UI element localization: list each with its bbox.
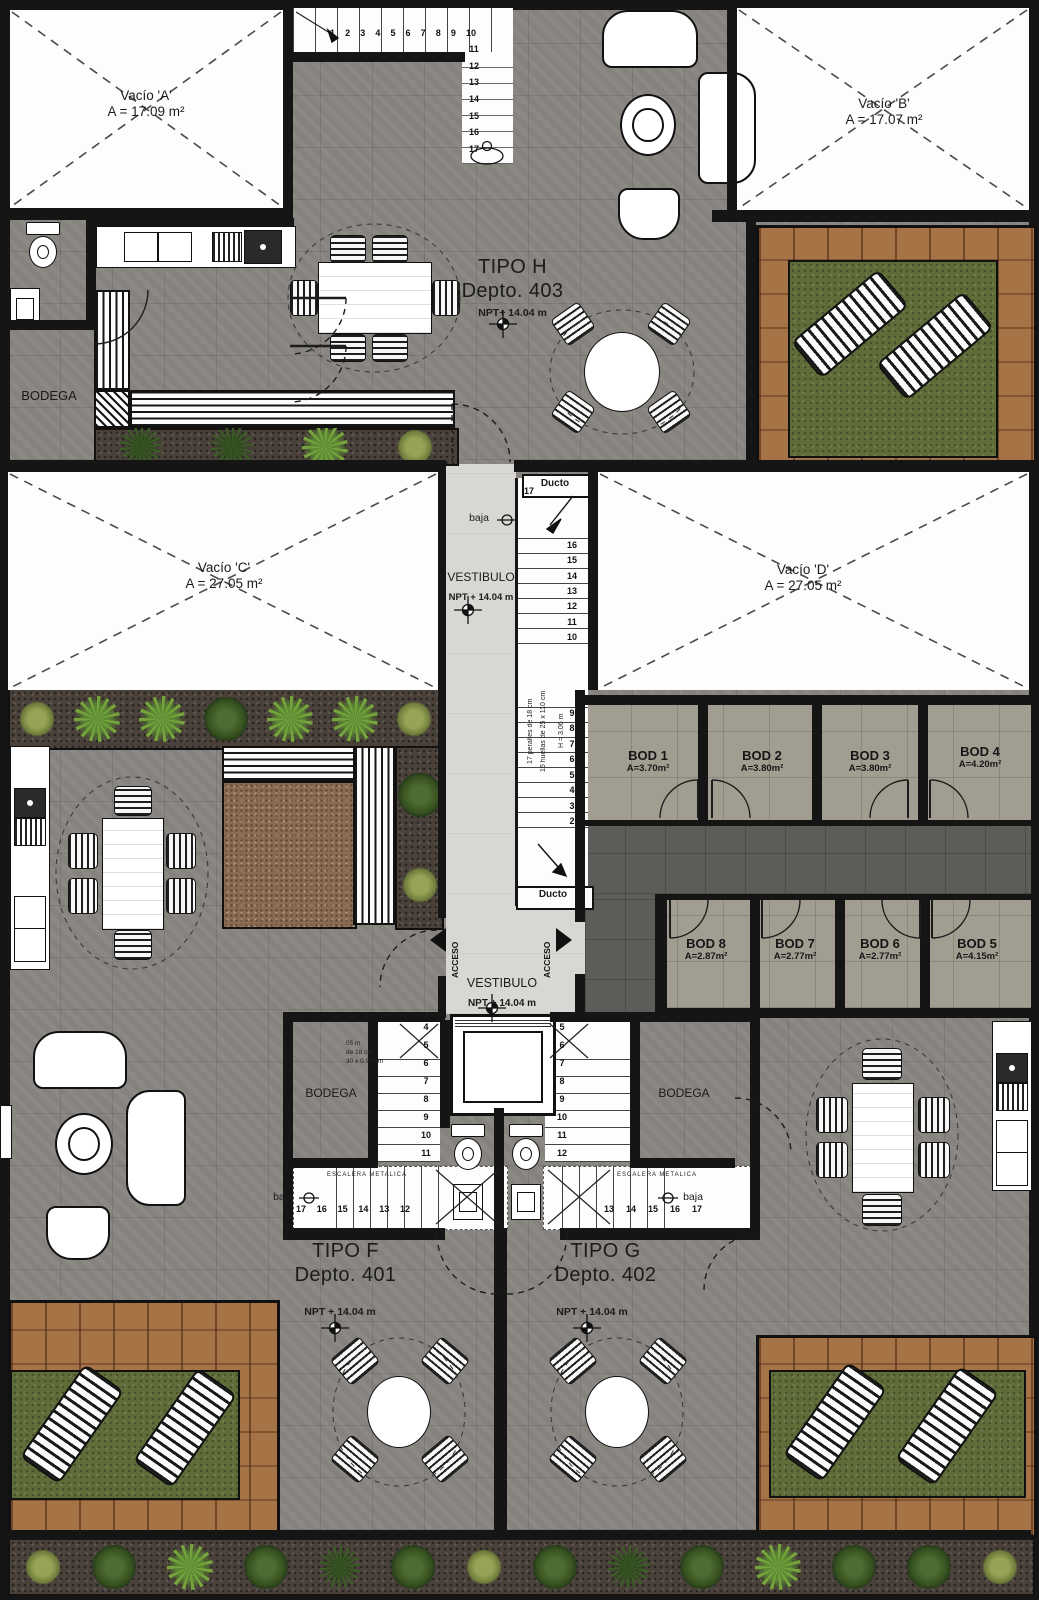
bench-corner [94, 390, 130, 428]
floor-plan: Vacío 'A' A = 17.09 m² Vacío 'B' A = 17.… [0, 0, 1039, 1600]
dining-table [852, 1083, 914, 1193]
chair-icon [918, 1142, 950, 1178]
stair-mid-note-1: 17 peraltes de 18 cm [527, 636, 534, 764]
wall [746, 222, 756, 465]
dishwasher-icon [996, 1083, 1028, 1111]
dishwasher-icon [212, 232, 242, 262]
unit-type: TIPO H [478, 256, 547, 278]
void-name: Vacío 'C' [198, 560, 250, 575]
vestibulo-npt: NPT + 14.04 m [468, 998, 536, 1009]
chair-icon [816, 1142, 848, 1178]
stair-f-note: 30 x 0.90 cm [346, 1058, 383, 1065]
wall [655, 894, 1039, 900]
plant-icon [832, 1545, 876, 1589]
dining-table [102, 818, 164, 930]
unit-type: TIPO F [312, 1240, 379, 1262]
elevator [450, 1014, 556, 1116]
bodega-label-f: BODEGA [292, 1086, 370, 1100]
bod-3-label: BOD 3A=3.80m² [822, 748, 918, 774]
plant-icon [391, 1545, 435, 1589]
bod-5-label: BOD 5A=4.15m² [922, 936, 1032, 962]
bench-vertical [94, 290, 130, 390]
plant-icon [680, 1545, 724, 1589]
side-table-icon [620, 94, 676, 156]
plant-icon [267, 696, 313, 742]
stair-number: 4 [375, 28, 380, 42]
wall [494, 1228, 507, 1538]
stair-number: 2 [560, 816, 584, 826]
stair-number: 13 [560, 586, 584, 596]
bodega-label-h: BODEGA [12, 388, 86, 403]
stair-g-flight-numbers: 56789101112 [550, 1022, 574, 1158]
stair-number: 5 [390, 28, 395, 42]
stair-number: 8 [414, 1094, 438, 1104]
stair-number: 10 [560, 632, 584, 642]
bod-6-label: BOD 6A=2.77m² [837, 936, 923, 962]
wall [630, 1020, 640, 1164]
stair-number: 10 [550, 1112, 574, 1122]
plant-icon [204, 697, 248, 741]
stair-number: 5 [550, 1022, 574, 1032]
acceso-arrow-left-icon [430, 928, 446, 952]
stair-number: 7 [414, 1076, 438, 1086]
storage-corridor-left [585, 894, 655, 1020]
bod-area: A=4.15m² [922, 951, 1032, 962]
stair-number: 9 [451, 28, 456, 42]
plant-icon [398, 773, 442, 817]
bod-area: A=2.77m² [837, 951, 923, 962]
stair-number: 5 [560, 770, 584, 780]
sofa-icon [126, 1090, 186, 1206]
ducto-label-bottom: Ducto [516, 889, 590, 901]
bod-name: BOD 5 [922, 936, 1032, 951]
bod-name: BOD 3 [822, 748, 918, 763]
wall [8, 1530, 1031, 1540]
chair-icon [166, 878, 196, 914]
stair-number: 17 [462, 144, 486, 154]
wall [96, 218, 294, 226]
stair-number: 17 [692, 1204, 702, 1220]
sink-icon [244, 230, 282, 264]
bodega-label-g: BODEGA [640, 1086, 728, 1100]
wall [585, 820, 1039, 826]
stair-top-run-numbers: 12345678910 [330, 28, 476, 42]
washbasin-icon [453, 1184, 483, 1220]
stair-number: 13 [604, 1204, 614, 1220]
acceso-label-right: ACCESO [542, 922, 552, 978]
stair-number: 12 [560, 601, 584, 611]
vestibulo-text: VESTIBULO [467, 976, 537, 990]
unit-depto: Depto. 403 [462, 280, 564, 302]
plant-icon [907, 1545, 951, 1589]
wall [10, 320, 96, 330]
wall [440, 1020, 450, 1128]
chair-icon [372, 235, 408, 263]
stair-number: 11 [462, 44, 486, 54]
side-table-icon [55, 1113, 113, 1175]
stair-number: 2 [345, 28, 350, 42]
unit-type: TIPO G [570, 1240, 640, 1262]
toilet-icon [509, 1124, 543, 1170]
sink-icon [14, 788, 46, 818]
bod-name: BOD 2 [712, 748, 812, 763]
void-name: Vacío 'D' [777, 562, 829, 577]
wall [86, 218, 96, 330]
chair-icon [918, 1097, 950, 1133]
cabinet-icon [996, 1152, 1028, 1186]
void-a-label: Vacío 'A' A = 17.09 m² [56, 88, 236, 120]
stair-number: 14 [462, 94, 486, 104]
wall [514, 460, 1039, 472]
toilet-icon [26, 222, 60, 268]
wall [727, 0, 737, 222]
baja-label-g: baja [678, 1191, 708, 1203]
wall [494, 1108, 504, 1228]
armchair-icon [46, 1206, 110, 1260]
stair-number: 15 [462, 111, 486, 121]
unit-h-label: TIPO H Depto. 403 NPT+ 14.04 m [425, 256, 600, 322]
plant-icon [25, 1549, 61, 1585]
stair-number: 12 [462, 61, 486, 71]
wall [812, 705, 822, 823]
bench-long [130, 390, 455, 428]
stair-number: 7 [550, 1058, 574, 1068]
storage-corridor [585, 826, 1031, 894]
void-area: A = 17.07 m² [846, 112, 923, 127]
plant-icon [396, 701, 432, 737]
chair-icon [68, 878, 98, 914]
bod-2-label: BOD 2A=3.80m² [712, 748, 812, 774]
sink-icon [996, 1053, 1028, 1083]
unit-g-npt: NPT + 14.04 m [547, 1306, 637, 1318]
bod-name: BOD 6 [837, 936, 923, 951]
wall [283, 1012, 445, 1022]
plant-icon [332, 696, 378, 742]
loveseat-icon [33, 1031, 127, 1089]
cooktop-icon [124, 232, 158, 262]
stair-number: 10 [466, 28, 476, 42]
planter-top [8, 688, 444, 750]
wall [575, 695, 1039, 705]
stair-f-note: de 18 cm [346, 1049, 373, 1056]
void-name: Vacío 'B' [858, 96, 909, 111]
wall [283, 1158, 378, 1168]
void-c-label: Vacío 'C' A = 27.05 m² [134, 560, 314, 592]
stair-number: 15 [560, 555, 584, 565]
stair-g-run-numbers: 1314151617 [604, 1204, 702, 1220]
stair-number: 6 [406, 28, 411, 42]
window-icon [0, 1105, 12, 1159]
chair-icon [816, 1097, 848, 1133]
stair-f-note: 05 m [346, 1040, 360, 1047]
stair-number: 6 [550, 1040, 574, 1050]
wall [293, 52, 465, 62]
void-area: A = 17.09 m² [108, 104, 185, 119]
stair-mid-note-3: H = 3.06 m [558, 652, 565, 748]
stair-number: 8 [550, 1076, 574, 1086]
bod-name: BOD 1 [598, 748, 698, 763]
void-name: Vacío 'A' [120, 88, 171, 103]
plant-icon [982, 1549, 1018, 1585]
vestibulo-lower-label: VESTIBULO NPT + 14.04 m [446, 974, 558, 1012]
dining-table [318, 262, 432, 334]
stair-number: 8 [436, 28, 441, 42]
plant-icon [244, 1545, 288, 1589]
patio-gravel [222, 781, 357, 929]
stair-number: 14 [626, 1204, 636, 1220]
chair-icon [114, 786, 152, 816]
armchair-icon [618, 188, 680, 240]
acceso-arrow-right-icon [556, 928, 572, 952]
wall [630, 1158, 735, 1168]
stair-number: 1 [330, 28, 335, 42]
wall [550, 1012, 760, 1022]
void-area: A = 27.05 m² [186, 576, 263, 591]
stair-number: 16 [462, 127, 486, 137]
chair-icon [290, 280, 318, 316]
plant-icon [92, 1545, 136, 1589]
stair-number: 15 [648, 1204, 658, 1220]
stair-mid-top-number: 17 [520, 486, 538, 497]
round-dining-table [367, 1376, 431, 1448]
round-dining-table [585, 1376, 649, 1448]
wall [8, 460, 446, 472]
cooktop-icon [158, 232, 192, 262]
wall [918, 705, 928, 823]
stair-number: 13 [462, 77, 486, 87]
unit-g-label: TIPO G Depto. 402 [543, 1240, 668, 1287]
stair-f-notes: 05 m de 18 cm 30 x 0.90 cm [346, 1040, 434, 1066]
chair-icon [166, 833, 196, 869]
vestibulo-text: VESTIBULO [447, 570, 514, 584]
stair-number: 6 [560, 754, 584, 764]
stair-number: 16 [670, 1204, 680, 1220]
wall [283, 1228, 445, 1240]
plant-icon [608, 1546, 650, 1588]
stair-number: 11 [560, 617, 584, 627]
stair-number: 14 [560, 571, 584, 581]
unit-f-npt: NPT + 14.04 m [295, 1306, 385, 1318]
plant-icon [19, 701, 55, 737]
wall [515, 478, 518, 906]
toilet-icon [451, 1124, 485, 1170]
bod-area: A=3.70m² [598, 763, 698, 774]
baja-label-mid: baja [462, 512, 496, 524]
plant-icon [167, 1544, 213, 1590]
vestibulo-npt: NPT + 14.04 m [449, 592, 514, 603]
stair-number: 12 [550, 1148, 574, 1158]
chair-icon [862, 1194, 902, 1226]
wall [560, 1228, 760, 1240]
stair-number: 9 [550, 1094, 574, 1104]
stair-number: 17 [296, 1204, 306, 1220]
void-area: A = 27.05 m² [765, 578, 842, 593]
wall [750, 1012, 760, 1236]
wall [438, 472, 446, 918]
stair-number: 9 [414, 1112, 438, 1122]
washbasin-icon [511, 1184, 541, 1220]
plant-icon [319, 1546, 361, 1588]
bod-area: A=2.87m² [660, 951, 752, 962]
stair-number: 3 [560, 801, 584, 811]
cabinet-icon [996, 1120, 1028, 1154]
stair-mid-note-2: 16 huellas de 25 x 110 cm [540, 632, 547, 772]
planter-side [395, 746, 444, 930]
plant-icon [533, 1545, 577, 1589]
escalera-label-f: ESCALERA METALICA [322, 1172, 412, 1179]
bod-name: BOD 8 [660, 936, 752, 951]
baja-label-f: baja [268, 1191, 298, 1203]
round-dining-table [584, 332, 660, 412]
plant-icon [402, 867, 438, 903]
stair-top-flight-numbers: 11121314151617 [462, 44, 486, 154]
void-b-label: Vacío 'B' A = 17.07 m² [794, 96, 974, 128]
chair-icon [330, 334, 366, 362]
stair-number: 10 [414, 1130, 438, 1140]
bod-4-label: BOD 4A=4.20m² [928, 744, 1032, 770]
chair-icon [862, 1048, 902, 1080]
vestibulo-upper-label: VESTIBULO NPT + 14.04 m [438, 568, 524, 606]
unit-depto: Depto. 402 [555, 1264, 657, 1286]
chair-icon [330, 235, 366, 263]
stair-number: 7 [421, 28, 426, 42]
stair-number: 16 [317, 1204, 327, 1220]
bod-area: A=4.20m² [928, 759, 1032, 770]
plant-icon [466, 1549, 502, 1585]
cabinet-icon [14, 928, 46, 962]
stair-number: 15 [338, 1204, 348, 1220]
wall [283, 0, 293, 220]
stair-f-run-numbers: 171615141312 [296, 1204, 410, 1220]
void-d-label: Vacío 'D' A = 27.05 m² [713, 562, 893, 594]
bod-name: BOD 7 [752, 936, 838, 951]
bod-area: A=2.77m² [752, 951, 838, 962]
stair-number: 14 [358, 1204, 368, 1220]
bod-area: A=3.80m² [822, 763, 918, 774]
stair-number: 16 [560, 540, 584, 550]
stair-number: 12 [400, 1204, 410, 1220]
wall [698, 705, 708, 823]
unit-npt: NPT+ 14.04 m [478, 307, 547, 319]
plant-icon [74, 696, 120, 742]
planter-bottom [8, 1538, 1035, 1596]
wall [588, 472, 598, 690]
plant-icon [755, 1544, 801, 1590]
unit-f-label: TIPO F Depto. 401 [283, 1240, 408, 1287]
chair-icon [68, 833, 98, 869]
bod-1-label: BOD 1A=3.70m² [598, 748, 698, 774]
chair-icon [114, 930, 152, 960]
stair-number: 11 [550, 1130, 574, 1140]
stair-number: 3 [360, 28, 365, 42]
acceso-label-left: ACCESO [450, 922, 460, 978]
bod-name: BOD 4 [928, 744, 1032, 759]
escalera-label-g: ESCALERA METALICA [612, 1172, 702, 1179]
cabinet-icon [14, 896, 46, 930]
bod-8-label: BOD 8A=2.87m² [660, 936, 752, 962]
stair-number: 4 [560, 785, 584, 795]
stair-number: 13 [379, 1204, 389, 1220]
patio-deck-band-right [353, 746, 395, 925]
loveseat-icon [602, 10, 698, 68]
stair-mid-upper-numbers: 16151413121110 [560, 540, 584, 642]
bod-area: A=3.80m² [712, 763, 812, 774]
plant-icon [139, 696, 185, 742]
chair-icon [372, 334, 408, 362]
unit-depto: Depto. 401 [295, 1264, 397, 1286]
stair-number: 4 [414, 1022, 438, 1032]
stair-number: 11 [414, 1148, 438, 1158]
wall [712, 210, 1039, 222]
dishwasher-icon [14, 818, 46, 846]
bod-7-label: BOD 7A=2.77m² [752, 936, 838, 962]
